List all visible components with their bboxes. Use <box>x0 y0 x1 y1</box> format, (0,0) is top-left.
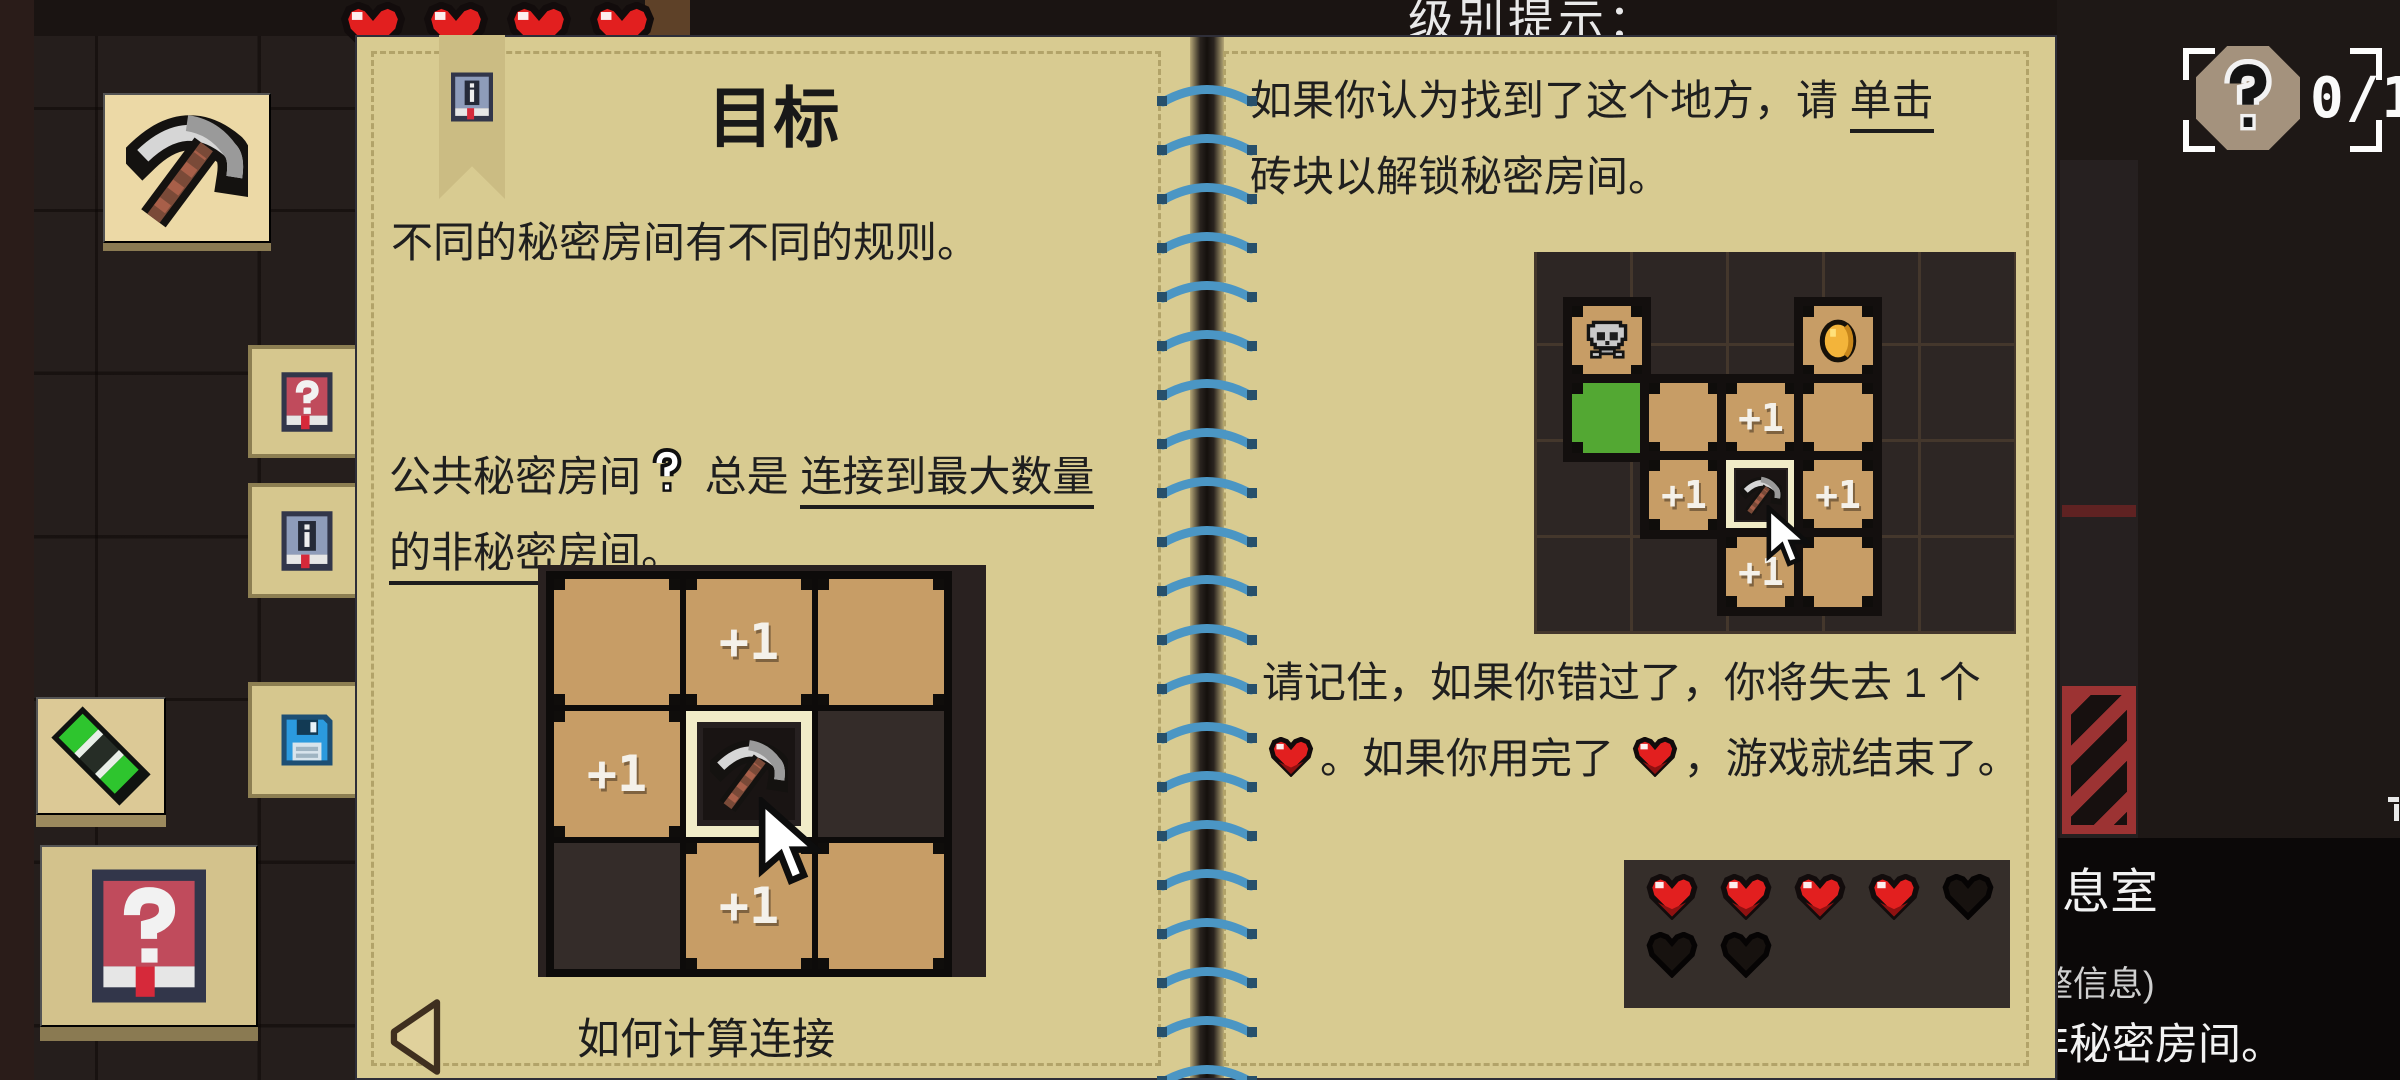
floor-tile <box>1649 383 1719 453</box>
green-tile <box>1572 383 1642 453</box>
stitch-icon <box>1155 908 1259 942</box>
paragraph-line: 如果你认为找到了这个地方，请 单击 <box>1250 63 1934 139</box>
empty-cell <box>1649 306 1719 376</box>
blue-info-book-icon <box>273 507 341 575</box>
stitch-icon <box>1155 271 1259 305</box>
empty-cell <box>1572 460 1642 530</box>
tile-cluster: +1+1 +1 <box>546 571 952 977</box>
empty-cell <box>1572 537 1642 607</box>
paragraph-line: 请记住，如果你错过了，你将失去 1 个 <box>1262 645 2020 721</box>
heart-empty-icon <box>1942 874 1994 920</box>
prev-arrow-icon <box>379 995 453 1079</box>
secret-room-badge <box>2196 46 2300 150</box>
stitch-icon <box>1155 320 1259 354</box>
floor-tile: +1 <box>1649 460 1719 530</box>
empty-cell <box>1649 537 1719 607</box>
heart-empty-icon <box>1646 932 1698 978</box>
floor-tile <box>818 843 944 969</box>
cursor-arrow-icon <box>1763 505 1811 571</box>
paragraph-line: 砖块以解锁秘密房间。 <box>1250 139 1934 215</box>
stitch-icon <box>1155 712 1259 746</box>
stitch-icon <box>1155 1055 1259 1080</box>
unrevealed-tile <box>554 843 680 969</box>
stitch-icon <box>1155 467 1259 501</box>
heart-full-icon <box>1720 874 1772 920</box>
stitch-icon <box>1155 663 1259 697</box>
red-question-book-icon <box>73 860 225 1012</box>
stitch-icon <box>1155 761 1259 795</box>
left-page-paragraph-1: 不同的秘密房间有不同的规则。 <box>391 205 979 281</box>
plus-one-label: +1 <box>1815 473 1861 517</box>
pickaxe-tool-button[interactable] <box>103 93 271 243</box>
heart-icon <box>1268 737 1314 777</box>
stitch-icon <box>1155 75 1259 109</box>
para1-underline: 单击 <box>1850 77 1934 133</box>
blue-info-book-icon <box>444 69 500 125</box>
plus-one-label: +1 <box>1738 396 1784 440</box>
floppy-disk-icon <box>273 706 341 774</box>
floor-tile <box>1803 537 1873 607</box>
left-dark-edge <box>0 0 34 1080</box>
unrevealed-tile <box>818 711 944 837</box>
question-mark-icon <box>649 443 685 501</box>
stitch-icon <box>1155 859 1259 893</box>
para2-part2: 。如果你用完了 <box>1320 735 1626 782</box>
question-mark-icon <box>2219 59 2277 137</box>
stitch-icon <box>1155 565 1259 599</box>
plus-one-label: +1 <box>1661 473 1707 517</box>
stitch-icon <box>1155 418 1259 452</box>
tooltip-panel: 息室 整信息) 非秘密房间。 <box>2058 838 2400 1080</box>
floor-tile: +1 <box>1726 383 1796 453</box>
heart-icon <box>1632 737 1678 777</box>
tile-cluster: +1+1 +1+1 <box>1572 306 1873 607</box>
book-tab-save[interactable] <box>248 682 366 798</box>
coin-icon <box>1811 316 1865 366</box>
tooltip-line1: 息室 <box>2062 852 2158 922</box>
para2-mid: 总是 <box>693 453 800 500</box>
book-tab-help[interactable] <box>248 345 366 458</box>
heart-empty-icon <box>1720 932 1772 978</box>
help-book-button[interactable] <box>40 845 258 1027</box>
hearts-status-panel <box>1624 860 2010 1008</box>
tutorial-book: 目标 不同的秘密房间有不同的规则。 公共秘密房间 总是 连接到最大数量 的非秘密… <box>355 35 2057 1080</box>
cursor-arrow-icon <box>754 797 822 891</box>
secret-room-example-illustration: +1+1 +1+1 <box>1534 252 2016 634</box>
stitch-icon <box>1155 173 1259 207</box>
stitch-icon <box>1155 369 1259 403</box>
book-tab-info[interactable] <box>248 483 366 598</box>
clipped-glyph-mark <box>2394 804 2399 821</box>
floor-tile <box>1803 383 1873 453</box>
stitch-icon <box>1155 124 1259 158</box>
coin-tile <box>1803 306 1873 376</box>
heart-full-icon <box>1794 874 1846 920</box>
skull-tile <box>1572 306 1642 376</box>
secret-room-counter: 0/1 <box>2310 66 2400 131</box>
game-screen: 级别提示： 息室 整信息) 非秘密房间。 0/1 <box>0 0 2400 1080</box>
para2-part3: ，游戏就结束了。 <box>1684 735 2020 782</box>
para1-post: 砖块以解锁秘密房间。 <box>1250 153 1670 200</box>
tooltip-line3: 非秘密房间。 <box>2058 1010 2284 1072</box>
floor-tile: +1 <box>554 711 680 837</box>
green-marker-icon <box>49 704 153 808</box>
skull-icon <box>1580 316 1634 366</box>
stitch-icon <box>1155 957 1259 991</box>
para2-part1: 请记住，如果你错过了，你将失去 1 个 <box>1262 659 1981 706</box>
plus-one-label: +1 <box>719 613 779 671</box>
stitch-icon <box>1155 810 1259 844</box>
left-page-caption: 如何计算连接 <box>577 1005 835 1067</box>
heart-full-icon <box>1868 874 1920 920</box>
connection-example-illustration: +1+1 +1 <box>538 565 986 977</box>
right-page-paragraph-1: 如果你认为找到了这个地方，请 单击 砖块以解锁秘密房间。 <box>1250 63 1934 215</box>
heart-full-icon <box>1646 874 1698 920</box>
clipped-glyph-mark <box>2388 797 2399 802</box>
right-page-paragraph-2: 请记住，如果你错过了，你将失去 1 个 。如果你用完了 ，游戏就结束了。 <box>1262 645 2020 797</box>
tooltip-line2: 整信息) <box>2058 956 2155 1007</box>
book-stitches <box>1155 75 1259 1080</box>
floor-tile <box>554 579 680 705</box>
stitch-icon <box>1155 516 1259 550</box>
plus-one-label: +1 <box>587 745 647 803</box>
stitch-icon <box>1155 222 1259 256</box>
paragraph-line: 。如果你用完了 ，游戏就结束了。 <box>1262 721 2020 797</box>
para2-pre: 公共秘密房间 <box>389 453 641 500</box>
para2-underline-1: 连接到最大数量 <box>800 453 1094 509</box>
stitch-icon <box>1155 1006 1259 1040</box>
floor-tile <box>818 579 944 705</box>
floor-tile: +1 <box>1803 460 1873 530</box>
pickaxe-icon <box>126 107 248 229</box>
para1-pre: 如果你认为找到了这个地方，请 <box>1250 77 1850 124</box>
floor-tile: +1 <box>686 579 812 705</box>
red-question-book-icon <box>273 368 341 436</box>
red-accent-line <box>2062 505 2136 517</box>
stitch-icon <box>1155 614 1259 648</box>
marker-tool-button[interactable] <box>36 697 166 815</box>
trap-tile <box>2062 686 2136 834</box>
empty-cell <box>1726 306 1796 376</box>
prev-page-button[interactable] <box>379 995 453 1079</box>
paragraph-line: 公共秘密房间 总是 连接到最大数量 <box>389 439 1094 515</box>
